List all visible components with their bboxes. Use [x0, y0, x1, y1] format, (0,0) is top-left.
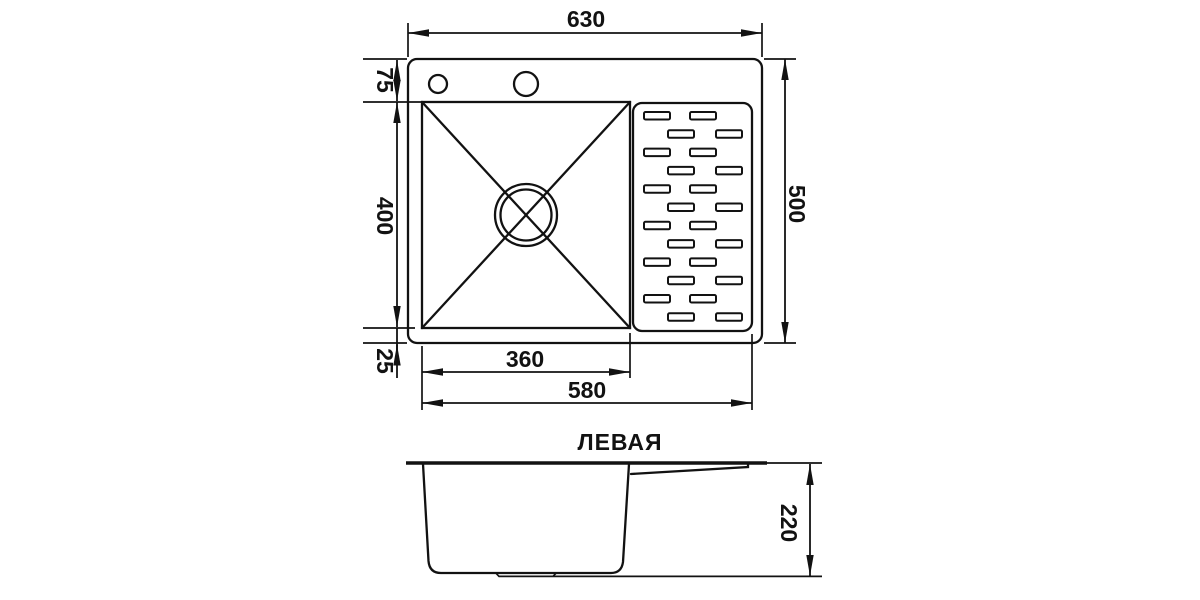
drainboard-slot [716, 130, 742, 138]
dim-rim-top-label: 75 [372, 67, 398, 93]
top-view [408, 59, 762, 343]
dim-rim-bottom-label: 25 [372, 348, 398, 374]
drawing-canvas: 630 500 75 400 25 360 580 220 ЛЕВАЯ [0, 0, 1200, 600]
drainboard-slot [644, 258, 670, 266]
side-view [406, 463, 822, 576]
drainboard-slot [668, 204, 694, 212]
dim-height-label: 220 [776, 504, 802, 542]
dim-bowl-width-label: 360 [506, 346, 544, 372]
drainboard-slot [644, 185, 670, 193]
view-title: ЛЕВАЯ [577, 429, 662, 455]
bowl-diagonals [422, 102, 630, 328]
drainboard-profile [631, 464, 748, 475]
dim-inner-width-label: 580 [568, 377, 606, 403]
faucet-hole-small [429, 75, 447, 93]
drainboard-slot [690, 185, 716, 193]
drainboard-slot [716, 277, 742, 285]
drainboard-slot [690, 112, 716, 120]
drainboard-slot [690, 222, 716, 230]
drainboard-slot [716, 167, 742, 175]
drainboard-slot [668, 240, 694, 248]
drainboard-slots [644, 112, 742, 321]
dimension-lines [397, 33, 810, 576]
drainboard-slot [690, 258, 716, 266]
drainboard-slot [716, 240, 742, 248]
dim-overall-width-label: 630 [567, 6, 605, 32]
drainboard-slot [690, 295, 716, 303]
drainboard-slot [644, 222, 670, 230]
drainboard-slot [644, 149, 670, 157]
drainboard-slot [644, 295, 670, 303]
drainboard-slot [690, 149, 716, 157]
faucet-hole-large [514, 72, 538, 96]
drainboard-slot [668, 167, 694, 175]
drainboard-slot [668, 130, 694, 138]
sink-dimension-drawing: 630 500 75 400 25 360 580 220 ЛЕВАЯ [0, 0, 1200, 600]
dim-bowl-length-label: 400 [372, 197, 398, 235]
dim-overall-depth-label: 500 [784, 185, 810, 223]
drainboard-slot [668, 313, 694, 321]
drainboard-slot [644, 112, 670, 120]
drainboard-slot [716, 204, 742, 212]
drainboard-slot [668, 277, 694, 285]
bowl-profile [423, 464, 629, 573]
drainboard-slot [716, 313, 742, 321]
